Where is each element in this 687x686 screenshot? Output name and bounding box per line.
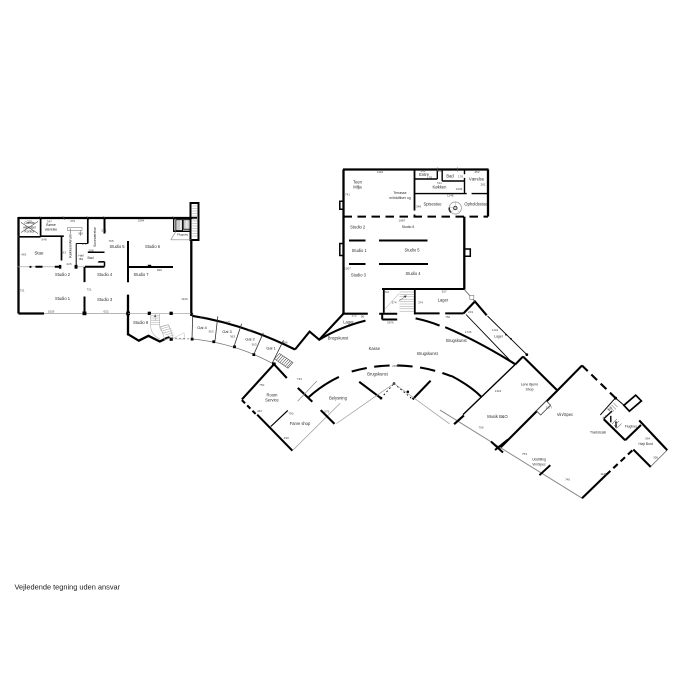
svg-text:380: 380	[247, 328, 252, 332]
svg-text:1887: 1887	[399, 219, 406, 223]
svg-text:Studio 2: Studio 2	[350, 224, 366, 229]
svg-text:Farve shop: Farve shop	[290, 421, 311, 426]
svg-text:374: 374	[391, 300, 396, 304]
svg-text:281: 281	[480, 182, 485, 186]
svg-text:325: 325	[351, 313, 356, 317]
svg-text:m/trädfliser og: m/trädfliser og	[389, 196, 411, 200]
svg-text:202: 202	[384, 290, 389, 294]
svg-text:Flugtvej: Flugtvej	[625, 425, 637, 429]
svg-text:1726: 1726	[465, 330, 472, 334]
svg-text:Gal 4: Gal 4	[197, 325, 207, 330]
svg-text:/flis: /flis	[79, 257, 84, 261]
svg-text:1120: 1120	[181, 297, 188, 301]
svg-text:Vejledende tegning uden ansvar: Vejledende tegning uden ansvar	[15, 583, 121, 592]
svg-text:348: 348	[416, 204, 421, 208]
svg-text:463: 463	[61, 251, 66, 255]
svg-text:2653: 2653	[392, 364, 399, 368]
svg-text:750: 750	[259, 383, 264, 387]
svg-text:Lager: Lager	[438, 298, 449, 303]
svg-text:Vin/Spec: Vin/Spec	[532, 463, 546, 467]
svg-text:226: 226	[66, 262, 71, 266]
svg-text:Studio 4: Studio 4	[405, 271, 421, 276]
svg-text:Bad: Bad	[446, 174, 454, 179]
svg-text:Brugskunst: Brugskunst	[446, 338, 467, 343]
svg-text:1507: 1507	[344, 267, 351, 271]
svg-text:1677: 1677	[546, 406, 553, 410]
svg-text:176: 176	[458, 175, 463, 179]
svg-text:1322: 1322	[495, 389, 502, 393]
svg-text:179: 179	[427, 175, 432, 179]
svg-text:Spisestue: Spisestue	[424, 201, 443, 206]
svg-text:Shop: Shop	[526, 388, 534, 392]
svg-text:Kasse: Kasse	[369, 346, 381, 351]
svg-text:352: 352	[474, 170, 479, 174]
svg-text:733: 733	[297, 377, 302, 381]
svg-text:374: 374	[418, 300, 423, 304]
svg-text:439: 439	[199, 316, 204, 320]
svg-text:Terrasse: Terrasse	[393, 191, 406, 195]
svg-text:432: 432	[257, 409, 262, 413]
svg-text:490: 490	[284, 436, 289, 440]
svg-text:Studio 5: Studio 5	[109, 244, 125, 249]
svg-text:Køkken/Alrum: Køkken/Alrum	[69, 234, 73, 258]
svg-text:Brugskunst: Brugskunst	[328, 335, 349, 340]
svg-text:Flugtvej: Flugtvej	[177, 233, 188, 237]
svg-text:1141: 1141	[492, 328, 499, 332]
svg-text:765: 765	[108, 239, 113, 243]
svg-text:Lene Bjerre: Lene Bjerre	[521, 383, 539, 387]
svg-text:496: 496	[282, 340, 287, 344]
svg-text:Brugskunst: Brugskunst	[367, 372, 388, 377]
svg-text:Træbdcafe: Træbdcafe	[590, 431, 606, 435]
svg-text:Gal 2: Gal 2	[245, 337, 255, 342]
svg-text:Studio 1: Studio 1	[352, 248, 368, 253]
svg-text:Studio 4: Studio 4	[97, 272, 113, 277]
svg-text:Studio 6: Studio 6	[145, 244, 161, 249]
svg-text:753: 753	[522, 452, 527, 456]
svg-text:242: 242	[420, 169, 425, 173]
svg-text:Service: Service	[265, 398, 279, 403]
svg-text:Milja: Milja	[353, 185, 362, 190]
svg-text:731: 731	[19, 289, 24, 293]
svg-text:Studio 3: Studio 3	[351, 273, 367, 278]
svg-text:Soveværelse: Soveværelse	[93, 227, 97, 247]
svg-text:Børne: Børne	[46, 223, 56, 227]
svg-text:Studio 2: Studio 2	[55, 272, 71, 277]
svg-text:360: 360	[78, 231, 83, 235]
svg-text:548: 548	[41, 237, 46, 241]
svg-text:Brugskunst: Brugskunst	[417, 351, 438, 356]
svg-text:Studio 5: Studio 5	[404, 248, 420, 253]
svg-text:741: 741	[345, 193, 350, 197]
svg-text:363: 363	[251, 342, 256, 346]
svg-text:731: 731	[86, 288, 91, 292]
svg-text:Køkken: Køkken	[433, 185, 448, 190]
svg-text:363: 363	[230, 334, 235, 338]
svg-text:632: 632	[103, 309, 108, 313]
svg-text:177: 177	[225, 320, 230, 324]
svg-text:Belysning: Belysning	[329, 396, 347, 401]
svg-text:1064: 1064	[138, 219, 145, 223]
svg-text:379: 379	[70, 219, 75, 223]
svg-text:Studio 1: Studio 1	[55, 296, 71, 301]
svg-text:Bad: Bad	[87, 256, 93, 260]
svg-text:1148: 1148	[447, 193, 454, 197]
svg-text:430: 430	[437, 169, 442, 173]
svg-text:1029: 1029	[48, 309, 55, 313]
svg-text:782: 782	[445, 315, 450, 319]
svg-text:745: 745	[565, 477, 570, 481]
svg-text:463: 463	[21, 253, 26, 257]
svg-text:Studio 8: Studio 8	[133, 320, 149, 325]
svg-text:Gal 3: Gal 3	[222, 329, 232, 334]
svg-text:Opholdsstue: Opholdsstue	[464, 201, 488, 206]
svg-text:575: 575	[324, 410, 329, 414]
svg-text:Stue: Stue	[34, 251, 44, 256]
svg-text:1009: 1009	[456, 187, 463, 191]
svg-text:Studio 3: Studio 3	[97, 297, 113, 302]
svg-text:Studio 6: Studio 6	[402, 225, 415, 229]
svg-text:3676: 3676	[387, 321, 394, 325]
svg-text:Vin/Spec: Vin/Spec	[557, 412, 573, 417]
svg-text:363: 363	[208, 330, 213, 334]
svg-text:521: 521	[102, 229, 107, 233]
svg-text:356: 356	[653, 456, 658, 460]
svg-text:564: 564	[645, 436, 650, 440]
svg-text:1119: 1119	[377, 170, 384, 174]
svg-text:790: 790	[288, 412, 293, 416]
svg-text:Kontor: Kontor	[25, 230, 36, 234]
svg-text:221: 221	[97, 260, 102, 264]
svg-text:værelse: værelse	[45, 228, 58, 232]
svg-text:794: 794	[437, 181, 442, 185]
svg-text:219: 219	[468, 310, 473, 314]
svg-text:Højt Bord: Højt Bord	[639, 442, 653, 446]
svg-text:Lager: Lager	[494, 335, 504, 339]
svg-text:Værelse: Værelse	[469, 177, 485, 182]
svg-text:96: 96	[361, 315, 365, 319]
svg-text:817: 817	[442, 290, 447, 294]
svg-text:756: 756	[478, 426, 483, 430]
svg-text:Studio 7: Studio 7	[133, 272, 149, 277]
svg-text:Gal 1: Gal 1	[266, 346, 276, 351]
svg-text:1125: 1125	[600, 472, 607, 476]
svg-text:298: 298	[88, 249, 93, 253]
svg-text:999: 999	[157, 268, 162, 272]
svg-text:Udstilling: Udstilling	[532, 458, 546, 462]
svg-text:Musik B&O: Musik B&O	[487, 414, 507, 419]
svg-text:170: 170	[81, 242, 86, 246]
